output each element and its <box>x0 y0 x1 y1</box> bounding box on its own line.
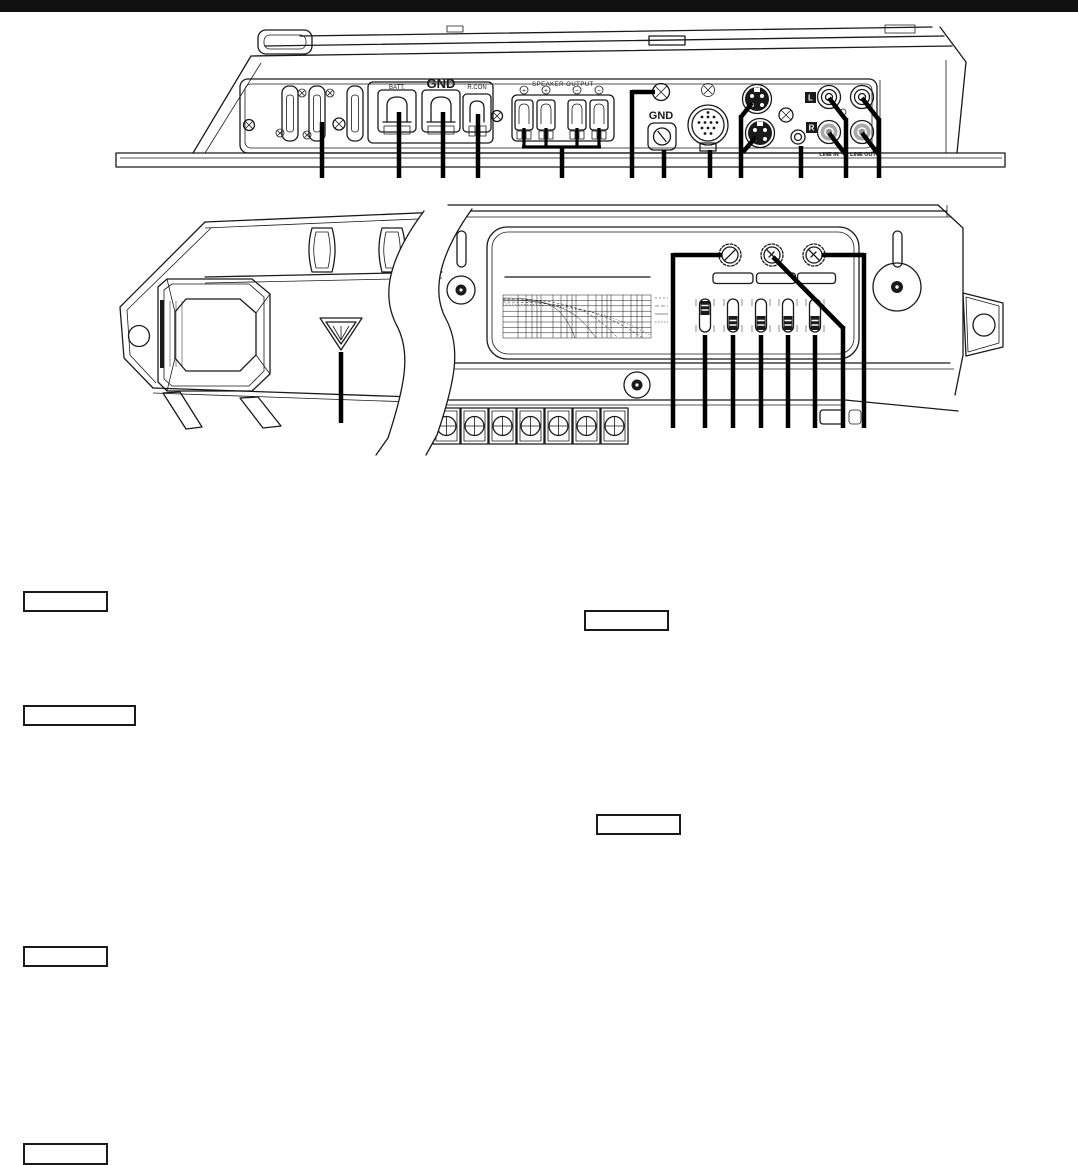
callout-box-3 <box>23 705 136 726</box>
line-in-label: LINE IN <box>819 152 839 158</box>
bottom-terminal-strip <box>433 408 628 444</box>
slide-switch-1 <box>696 299 714 332</box>
left-channel-label: L <box>808 94 813 103</box>
slide-switches <box>696 299 824 332</box>
rca-jacks-group: L R LINE IN LINE OUT <box>779 86 876 159</box>
polarity-minus-2: − <box>597 87 601 94</box>
amp-body-right <box>437 205 1003 424</box>
speaker-output-label: SPEAKER OUTPUT <box>532 82 594 88</box>
callout-box-6 <box>23 1143 108 1165</box>
fuse-holders <box>244 86 364 141</box>
terminal-screw <box>461 408 488 444</box>
graph-legend-dashes <box>655 298 668 322</box>
slide-switch-3 <box>752 299 770 332</box>
brand-triangle-logo <box>320 318 362 350</box>
callout-box-2 <box>584 610 669 631</box>
gnd-screw-label: GND <box>649 110 674 122</box>
speaker-output-block: SPEAKER OUTPUT + + − <box>492 82 615 141</box>
slide-switch-4 <box>779 299 797 332</box>
din4-connectors <box>743 85 775 148</box>
rcon-label: R.CON <box>467 85 486 91</box>
polarity-minus-1: − <box>575 87 579 94</box>
callout-box-5 <box>23 946 108 967</box>
terminal-screw <box>517 408 544 444</box>
rear-panel-figure: BATT. GND R.CON SPEAKER OUTPUT + + <box>0 0 1078 195</box>
aux-ring <box>791 130 805 144</box>
slide-switch-2 <box>724 299 742 332</box>
knob-label-plates <box>713 273 836 284</box>
fuse-screws <box>244 89 346 139</box>
terminal-screw <box>489 408 516 444</box>
gnd-terminal-label: GND <box>427 76 456 91</box>
manual-page: BATT. GND R.CON SPEAKER OUTPUT + + <box>0 0 1078 1165</box>
line-out-label: LINE OUT <box>850 152 876 158</box>
din-multi-connector <box>688 84 728 152</box>
power-terminal-block: BATT. GND R.CON <box>368 76 493 143</box>
polarity-plus-2: + <box>544 87 548 94</box>
callout-box-4 <box>596 814 681 835</box>
right-channel-label: R <box>809 124 815 133</box>
bass-boost-knob <box>803 244 825 266</box>
control-panel-figure <box>0 195 1078 460</box>
callout-box-1 <box>23 591 108 612</box>
batt-label: BATT. <box>389 85 405 91</box>
terminal-screw <box>601 408 628 444</box>
terminal-screw <box>545 408 572 444</box>
crossover-graph <box>503 277 668 338</box>
terminal-screw <box>573 408 600 444</box>
gain-knob <box>719 244 741 266</box>
polarity-plus-1: + <box>522 87 526 94</box>
